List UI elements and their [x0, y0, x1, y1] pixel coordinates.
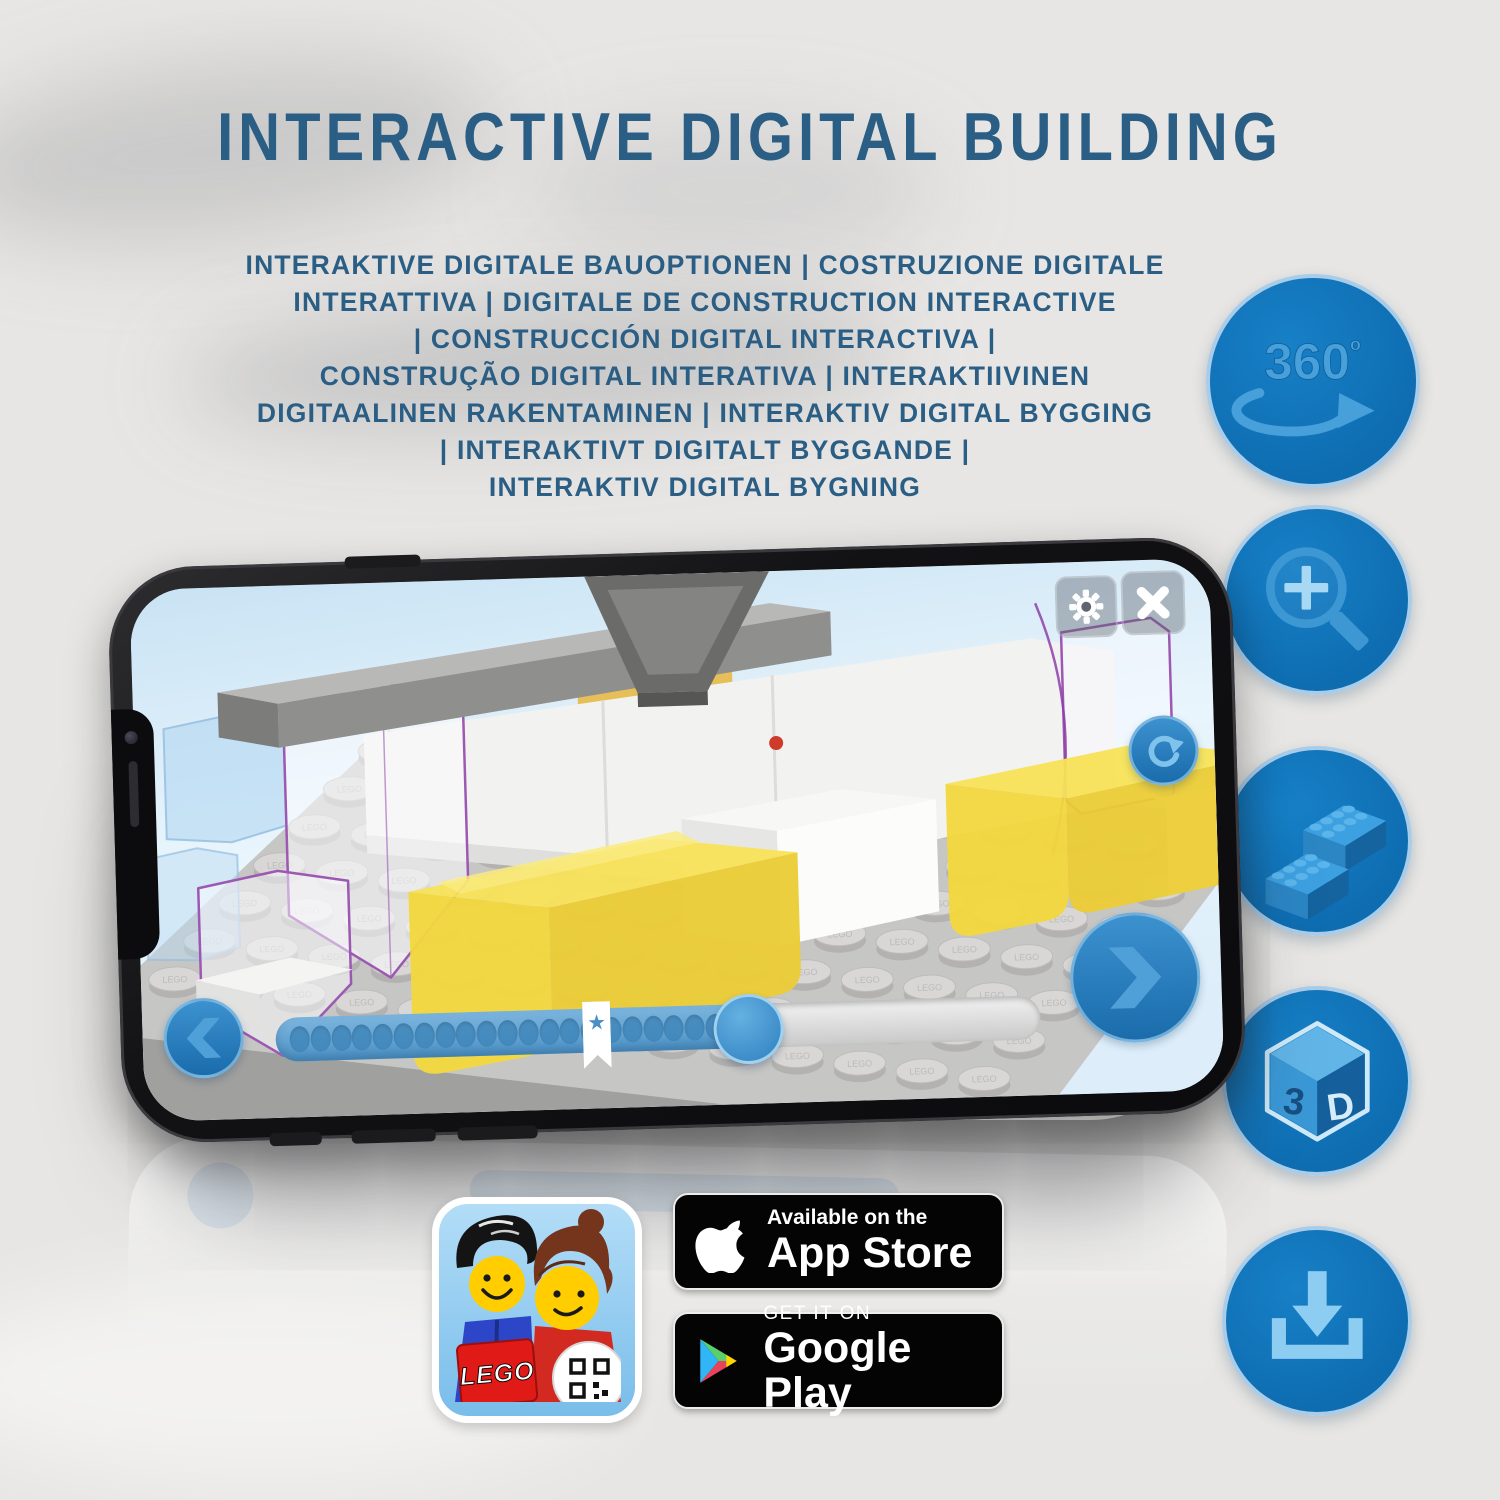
phone-power-button — [344, 554, 420, 568]
download-icon — [1222, 1226, 1412, 1416]
app-store-name: App Store — [767, 1231, 972, 1276]
boy-face — [469, 1256, 525, 1312]
progress-step-dot — [456, 1021, 477, 1048]
phone-mute-switch — [270, 1132, 322, 1147]
smartphone: LEGOLEGOLEGOLEGOLEGOLEGOLEGOLEGOLEGOLEGO… — [107, 535, 1248, 1144]
3d-right-label: D — [1324, 1083, 1357, 1128]
google-play-name: Google Play — [763, 1326, 1002, 1416]
svg-text:LEGO: LEGO — [889, 936, 914, 947]
subtitle-line: CONSTRUÇÃO DIGITAL INTERATIVA | INTERAKT… — [0, 358, 1410, 395]
chevron-right-icon — [1108, 946, 1162, 1010]
earpiece-speaker — [128, 761, 139, 827]
progress-step-dot — [435, 1022, 456, 1049]
360-rotation-icon: 360º — [1206, 274, 1420, 488]
progress-step-dot — [352, 1024, 373, 1051]
progress-step-dot — [643, 1015, 664, 1042]
progress-step-dot — [497, 1020, 518, 1047]
progress-step-dot — [664, 1015, 685, 1042]
close-button[interactable] — [1120, 570, 1186, 636]
multilingual-subtitle: INTERAKTIVE DIGITALE BAUOPTIONEN | COSTR… — [0, 247, 1410, 506]
app-store-badge[interactable]: Available on the App Store — [673, 1193, 1004, 1290]
apple-icon — [675, 1211, 767, 1273]
svg-text:LEGO: LEGO — [349, 997, 374, 1008]
subtitle-line: INTERATTIVA | DIGITALE DE CONSTRUCTION I… — [0, 284, 1410, 321]
lego-logo-tile: LEGO — [457, 1339, 538, 1402]
progress-step-dot — [373, 1024, 394, 1051]
google-play-badge[interactable]: GET IT ON Google Play — [673, 1312, 1004, 1409]
svg-text:LEGO: LEGO — [909, 1066, 934, 1077]
subtitle-line: INTERAKTIVE DIGITALE BAUOPTIONEN | COSTR… — [0, 247, 1410, 284]
google-play-icon — [675, 1332, 763, 1390]
progress-step-dot — [622, 1016, 643, 1043]
progress-step-dot — [310, 1025, 331, 1052]
progress-step-dot — [289, 1026, 310, 1053]
refresh-icon — [1143, 730, 1184, 771]
gear-icon — [1068, 588, 1105, 625]
front-camera — [125, 731, 138, 744]
phone-volume-button — [457, 1125, 537, 1140]
lego-brick-icon — [1222, 746, 1412, 936]
svg-text:LEGO: LEGO — [952, 944, 977, 955]
progress-step-dot — [414, 1022, 435, 1049]
360-label: 360º — [1265, 332, 1362, 390]
chevron-left-icon — [186, 1018, 221, 1059]
progress-step-dot — [331, 1025, 352, 1052]
progress-step-dot — [560, 1018, 581, 1045]
lego-app-icon[interactable]: LEGO — [432, 1197, 642, 1423]
app-screen: LEGOLEGOLEGOLEGOLEGOLEGOLEGOLEGOLEGOLEGO… — [129, 558, 1224, 1122]
girl-face — [535, 1266, 599, 1330]
star-icon: ★ — [587, 1010, 607, 1036]
progress-step-dot — [539, 1019, 560, 1046]
subtitle-line: DIGITAALINEN RAKENTAMINEN | INTERAKTIV D… — [0, 395, 1410, 432]
settings-button[interactable] — [1054, 575, 1118, 639]
progress-step-dot — [684, 1014, 705, 1041]
svg-text:LEGO: LEGO — [917, 982, 942, 993]
svg-text:LEGO: LEGO — [847, 1058, 872, 1069]
subtitle-line: | CONSTRUCCIÓN DIGITAL INTERACTIVA | — [0, 321, 1410, 358]
progress-step-dot — [518, 1019, 539, 1046]
close-icon — [1134, 583, 1173, 622]
google-play-tagline: GET IT ON — [763, 1304, 1002, 1324]
svg-text:LEGO: LEGO — [855, 975, 880, 986]
subtitle-line: | INTERAKTIVT DIGITALT BYGGANDE | — [0, 432, 1410, 469]
zoom-in-icon — [1222, 505, 1412, 695]
phone-notch — [111, 708, 160, 959]
reflection-dot — [187, 1162, 254, 1229]
page-title: INTERACTIVE DIGITAL BUILDING — [0, 99, 1500, 177]
svg-text:LEGO: LEGO — [1014, 952, 1039, 963]
subtitle-line: INTERAKTIV DIGITAL BYGNING — [0, 469, 1410, 506]
3d-view-icon: 3 D — [1222, 986, 1412, 1176]
progress-step-dot — [476, 1020, 497, 1047]
svg-text:LEGO: LEGO — [785, 1051, 810, 1062]
svg-text:LEGO: LEGO — [972, 1074, 997, 1085]
phone-volume-button — [351, 1128, 435, 1143]
progress-step-dot — [393, 1023, 414, 1050]
svg-text:LEGO: LEGO — [1041, 998, 1066, 1009]
svg-text:LEGO: LEGO — [162, 974, 187, 985]
app-store-tagline: Available on the — [767, 1207, 972, 1229]
